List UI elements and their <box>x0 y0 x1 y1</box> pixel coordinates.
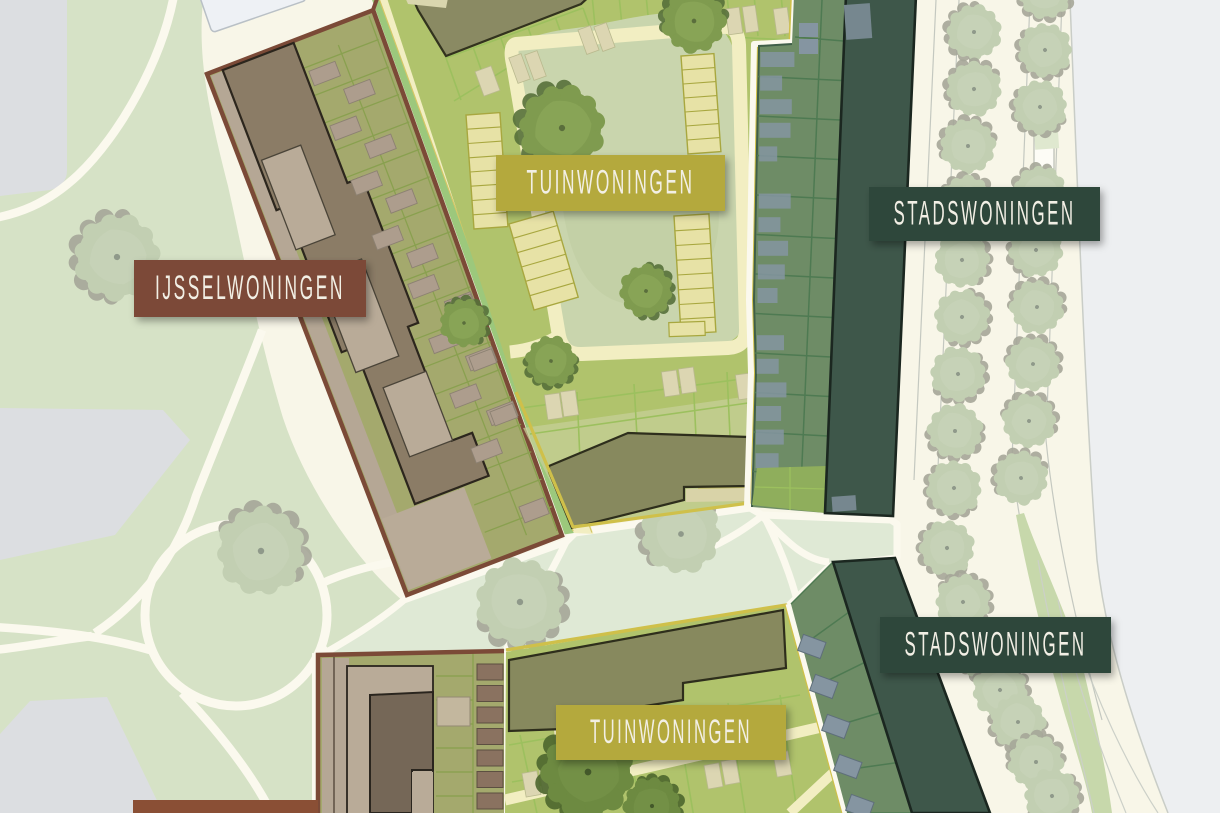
svg-text:STADSWONINGEN: STADSWONINGEN <box>894 195 1076 233</box>
svg-text:STADSWONINGEN: STADSWONINGEN <box>905 626 1087 664</box>
svg-text:IJSSELWONINGEN: IJSSELWONINGEN <box>155 269 345 307</box>
svg-text:TUINWONINGEN: TUINWONINGEN <box>527 164 695 202</box>
svg-text:TUINWONINGEN: TUINWONINGEN <box>590 713 752 751</box>
